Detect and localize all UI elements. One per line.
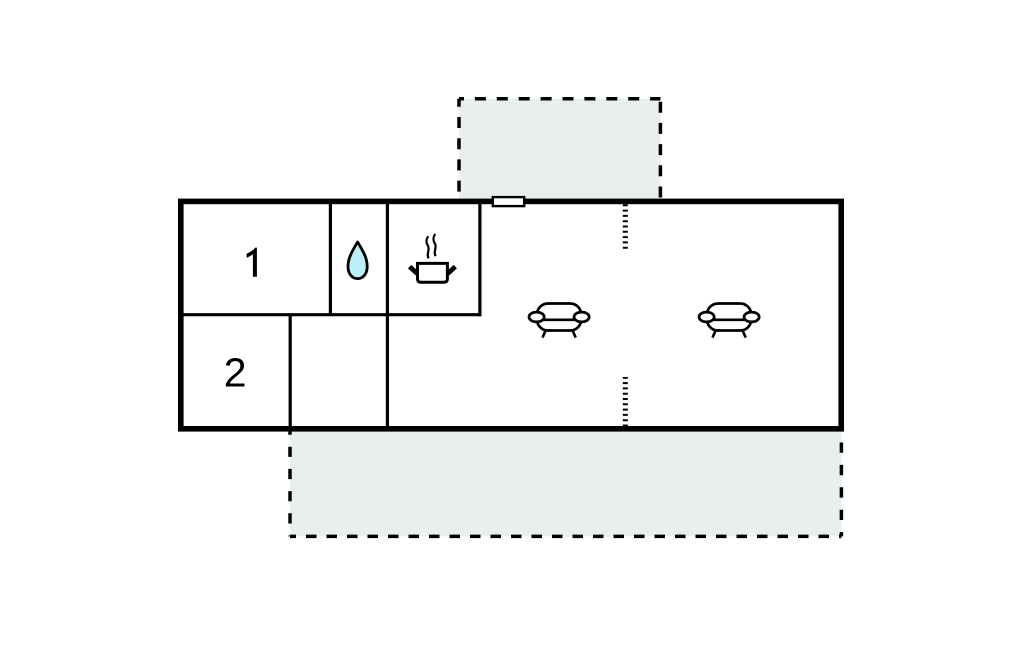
svg-text:2: 2 bbox=[224, 349, 247, 395]
